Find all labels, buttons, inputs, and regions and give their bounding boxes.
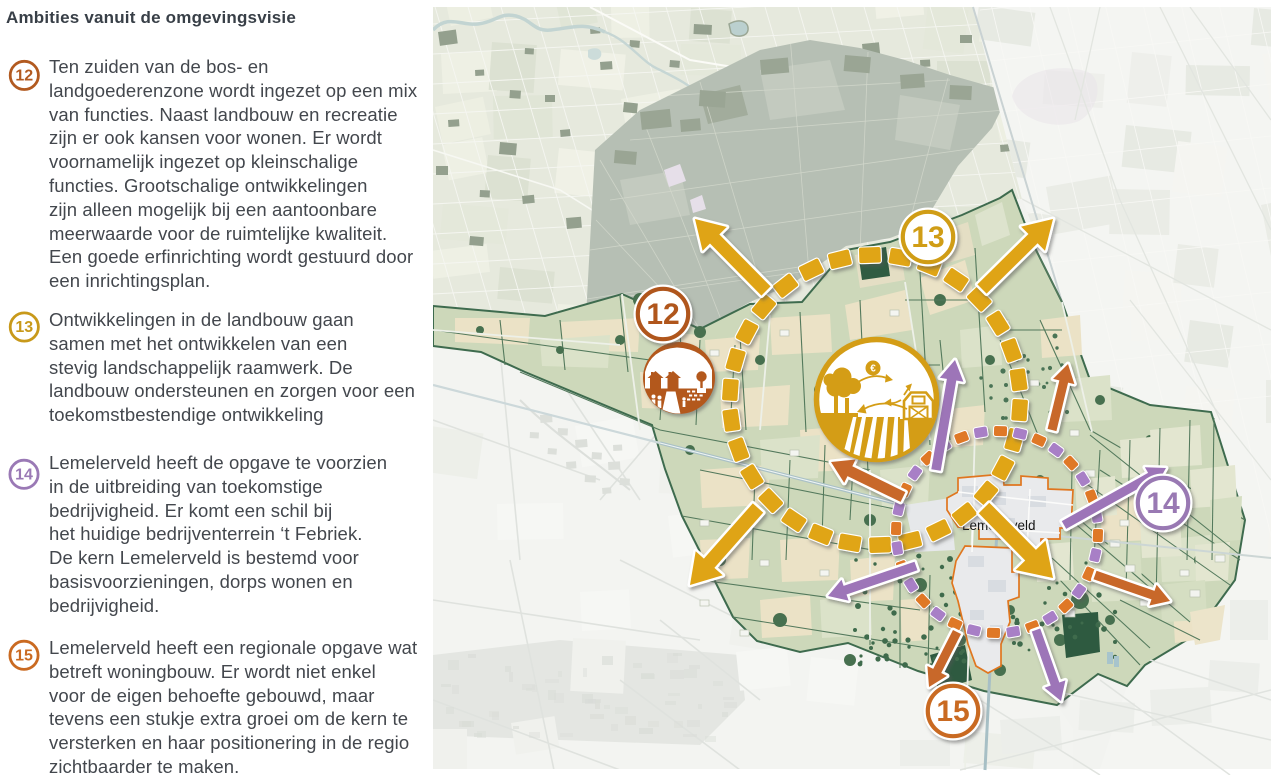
svg-text:€: € (870, 364, 876, 375)
svg-text:14: 14 (15, 466, 33, 483)
svg-text:15: 15 (15, 647, 33, 664)
svg-text:12: 12 (15, 67, 33, 84)
svg-text:15: 15 (936, 695, 969, 728)
svg-text:12: 12 (646, 298, 679, 331)
svg-text:13: 13 (911, 221, 944, 254)
svg-text:14: 14 (1146, 487, 1180, 520)
svg-text:13: 13 (15, 319, 33, 336)
